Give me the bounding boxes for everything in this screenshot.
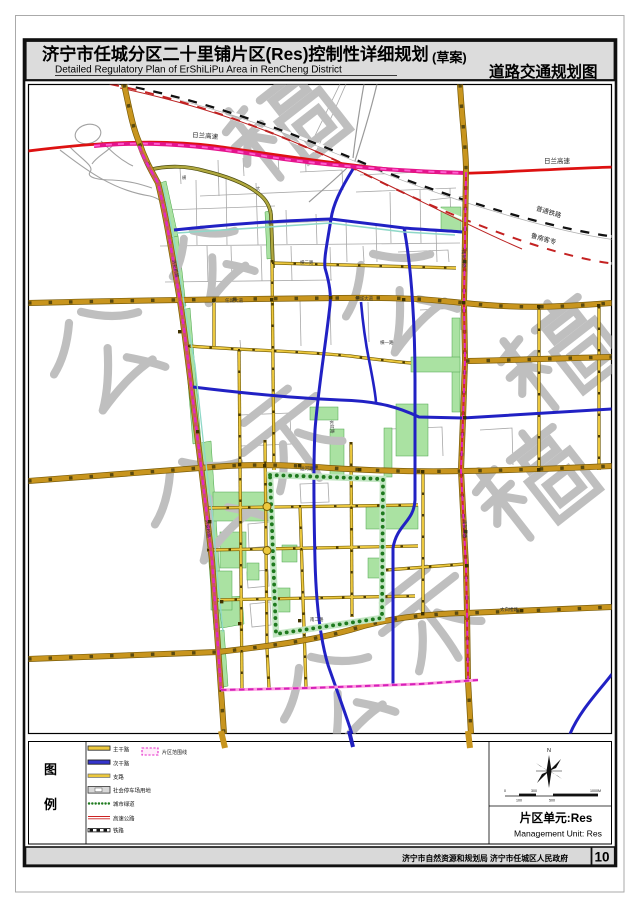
svg-text:运河路: 运河路	[300, 465, 314, 472]
svg-text:N: N	[547, 748, 551, 754]
svg-text:图: 图	[44, 762, 57, 777]
svg-text:主干路: 主干路	[113, 746, 130, 754]
svg-text:10: 10	[594, 850, 609, 865]
svg-text:横二路: 横二路	[300, 259, 314, 266]
svg-text:高速公路: 高速公路	[113, 815, 135, 823]
svg-text:大: 大	[256, 185, 260, 192]
svg-text:Detailed Regulatory Plan of Er: Detailed Regulatory Plan of ErShiLiPu Ar…	[55, 65, 342, 76]
svg-text:道路交通规划图: 道路交通规划图	[489, 62, 598, 81]
svg-text:次干路: 次干路	[113, 760, 130, 768]
svg-text:社会停车场用地: 社会停车场用地	[113, 787, 151, 795]
svg-text:日兰高速: 日兰高速	[544, 156, 571, 165]
svg-text:城市绿道: 城市绿道	[113, 800, 135, 808]
svg-text:300: 300	[531, 789, 537, 793]
svg-text:0: 0	[504, 789, 506, 793]
svg-text:任城大道: 任城大道	[355, 295, 373, 302]
svg-text:片区范围线: 片区范围线	[162, 749, 187, 756]
svg-text:南二路: 南二路	[310, 616, 324, 623]
svg-text:太白楼路: 太白楼路	[500, 606, 518, 613]
svg-text:铁路: 铁路	[113, 827, 124, 835]
svg-text:横一路: 横一路	[380, 339, 394, 346]
svg-text:支路: 支路	[113, 773, 124, 781]
svg-text:济宁市自然资源和规划局 济宁市任城区人民政府: 济宁市自然资源和规划局 济宁市任城区人民政府	[402, 853, 568, 863]
svg-text:例: 例	[44, 797, 57, 812]
svg-text:(草案): (草案)	[432, 50, 467, 65]
svg-text:100: 100	[516, 799, 522, 803]
svg-text:任城大道: 任城大道	[225, 297, 243, 304]
svg-text:Management Unit: Res: Management Unit: Res	[514, 829, 602, 839]
svg-text:500: 500	[549, 799, 555, 803]
svg-text:济宁市任城分区二十里铺片区(Res)控制性详细规划: 济宁市任城分区二十里铺片区(Res)控制性详细规划	[42, 44, 429, 64]
svg-text:片区单元:Res: 片区单元:Res	[520, 811, 593, 825]
svg-text:1000M: 1000M	[590, 789, 601, 793]
